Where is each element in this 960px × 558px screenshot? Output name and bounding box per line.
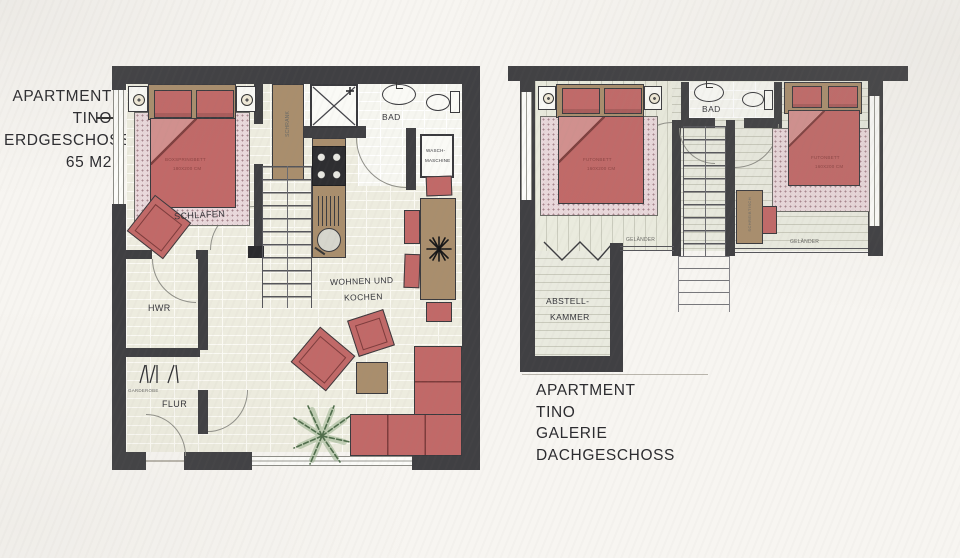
faucet-icon <box>396 82 403 89</box>
toilet-tank <box>450 91 460 113</box>
sofa-cushion-lines <box>351 415 461 455</box>
bed-mattress: FUTONBETT 160X200 CM <box>788 110 860 186</box>
nightstand <box>236 86 256 112</box>
entry-threshold <box>146 460 184 462</box>
bed-mattress: FUTONBETT 160X200 CM <box>558 116 644 204</box>
dining-chair <box>426 176 453 197</box>
bed-mattress: BOXSPRINGBETT 180X200 CM <box>150 118 236 208</box>
bed-label: FUTONBETT <box>811 155 840 160</box>
lamp-icon <box>649 93 660 104</box>
pillow <box>604 88 642 114</box>
title-line: GALERIE <box>536 423 716 445</box>
interior-wall <box>124 348 200 357</box>
nightstand <box>538 86 556 110</box>
title-line: ERDGESCHOSS <box>4 130 112 152</box>
staircase-up <box>262 166 312 308</box>
bed-size-label: 180X200 CM <box>173 166 201 171</box>
title-line: 65 M2 <box>4 152 112 174</box>
outer-wall-bottom <box>184 452 252 470</box>
pillow <box>196 90 234 118</box>
railing-left-label: GELÄNDER <box>626 237 655 243</box>
nightstand <box>644 86 662 110</box>
lamp-icon <box>133 94 145 106</box>
coat-hangers-icon <box>136 362 190 386</box>
room-label-kammer: KAMMER <box>550 312 590 322</box>
title-line: TINO <box>536 402 716 424</box>
shower-cross-icon <box>312 86 356 126</box>
title-divider <box>522 374 708 375</box>
sofa-horizontal-leg <box>350 414 462 456</box>
outer-wall-left <box>112 66 126 90</box>
pillow <box>154 90 192 118</box>
room-label-bad: BAD <box>702 104 721 114</box>
lamp-icon <box>241 94 253 106</box>
plan-left-title: APARTMENT TINO ERDGESCHOSS 65 M2 <box>4 86 112 174</box>
interior-wall <box>726 120 735 256</box>
desk-label: SCHREIBTISCH <box>747 197 752 232</box>
dining-chair <box>426 302 452 322</box>
railing-left <box>620 246 674 251</box>
plan-dachgeschoss: FUTONBETT 160X200 CM BAD FUTONBETT 160X2… <box>480 0 960 558</box>
shower <box>310 84 358 128</box>
title-line: TINO <box>4 108 112 130</box>
plan-erdgeschoss: APARTMENT TINO ERDGESCHOSS 65 M2 <box>0 0 480 558</box>
plan-right-title: APARTMENT TINO GALERIE DACHGESCHOSS <box>536 380 716 466</box>
staircase-down <box>683 126 726 256</box>
pillow <box>792 86 822 108</box>
outer-wall-bottom <box>112 452 146 470</box>
interior-wall <box>406 128 416 190</box>
bed-label: BOXSPRINGBETT <box>165 157 206 162</box>
title-line: APARTMENT <box>4 86 112 108</box>
outer-wall-top <box>508 66 908 81</box>
interior-wall <box>124 250 152 259</box>
room-label-hwr: HWR <box>148 303 171 313</box>
wardrobe-label: SCHRANK <box>285 111 291 137</box>
interior-wall <box>672 120 681 256</box>
interior-wall <box>198 250 208 350</box>
outer-wall-left <box>112 204 126 470</box>
lamp-icon <box>543 93 554 104</box>
room-label-flur: FLUR <box>162 399 187 409</box>
bed-label: FUTONBETT <box>583 157 612 162</box>
toilet-tank <box>764 90 773 110</box>
room-label-abstell: ABSTELL- <box>546 296 589 306</box>
washing-machine: WASCH- MASCHINE <box>420 134 454 178</box>
pillow <box>562 88 600 114</box>
window-left <box>113 90 124 204</box>
leader-line <box>96 117 114 119</box>
garderobe-label: GARDEROBE <box>128 388 159 393</box>
title-line: APARTMENT <box>536 380 716 402</box>
faucet-icon <box>706 81 713 88</box>
desk-chair <box>762 206 777 234</box>
interior-wall <box>774 82 782 118</box>
nightstand <box>128 86 148 112</box>
dining-chair <box>404 210 420 244</box>
floor-plant-icon <box>288 402 356 468</box>
room-label-kochen: KOCHEN <box>344 291 383 302</box>
dish-rack <box>318 196 341 226</box>
blanket-fold <box>789 111 825 147</box>
table-plant-icon <box>426 236 452 262</box>
toilet <box>426 94 450 111</box>
railing-right <box>735 248 868 253</box>
floor-plan-canvas: APARTMENT TINO ERDGESCHOSS 65 M2 <box>0 0 960 558</box>
outer-wall-top <box>112 66 480 84</box>
pillow <box>828 86 858 108</box>
void-zigzag-icon <box>542 238 614 264</box>
title-line: DACHGESCHOSS <box>536 445 716 467</box>
window-left <box>521 92 532 200</box>
stove <box>312 146 346 186</box>
storage-wall-bottom <box>520 356 623 372</box>
stair-center-line <box>705 126 706 256</box>
staircase-lower-run <box>678 256 730 312</box>
stair-center-line <box>287 166 288 308</box>
kitchen-sink <box>317 228 341 252</box>
window-right <box>869 96 880 226</box>
desk: SCHREIBTISCH <box>736 190 763 244</box>
washing-machine-label: MASCHINE <box>425 158 450 163</box>
bed-size-label: 160X200 CM <box>587 166 615 171</box>
toilet <box>742 92 764 107</box>
railing-right-label: GELÄNDER <box>790 239 819 245</box>
dining-chair <box>403 254 420 289</box>
coffee-table <box>356 362 388 394</box>
interior-wall <box>198 390 208 434</box>
outer-wall-right <box>462 66 480 470</box>
bed-size-label: 160X200 CM <box>815 164 843 169</box>
armchair-seat <box>355 318 388 351</box>
interior-wall <box>681 82 689 118</box>
washing-machine-label: WASCH- <box>426 148 445 153</box>
room-label-bad: BAD <box>382 112 401 122</box>
